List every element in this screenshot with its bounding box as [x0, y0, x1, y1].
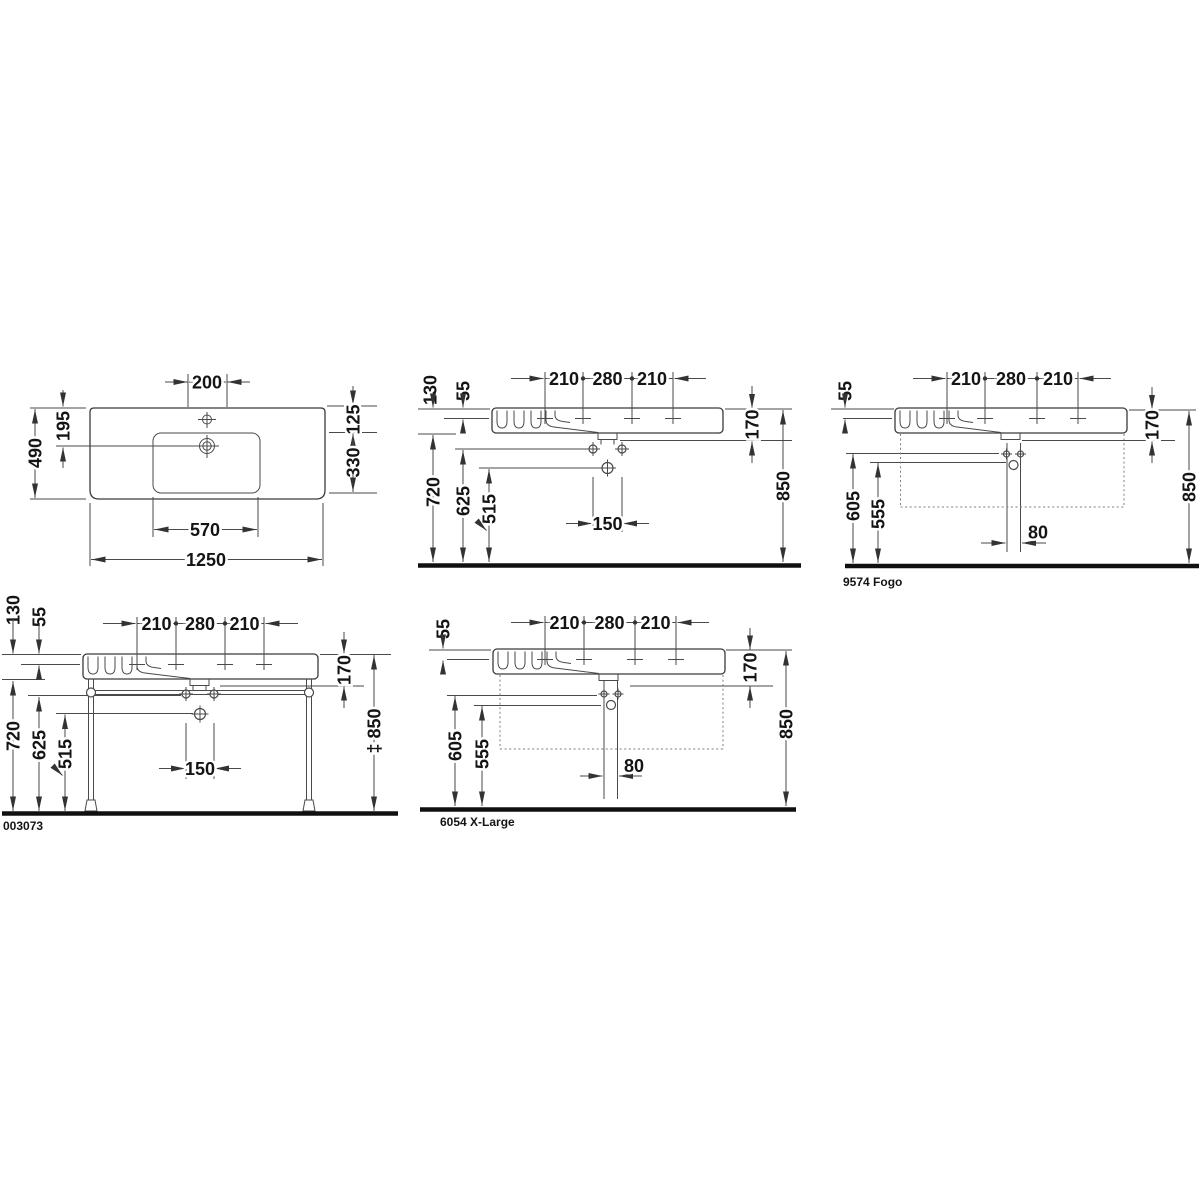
dim-fixing-height: 605 [843, 454, 863, 563]
dim-label-210-right: 210 [637, 369, 667, 389]
dim-label-130: 130 [420, 375, 440, 405]
drain-outlet-icon [607, 701, 616, 710]
dim-label-55: 55 [433, 619, 453, 639]
dim-basin-width: 570 [154, 520, 257, 540]
vanity-unit-outline [901, 434, 1125, 507]
dim-rim-height: 850 [776, 651, 796, 806]
fixing-holes [586, 440, 629, 477]
dim-label-720: 720 [423, 477, 443, 507]
drawing-metal-console: 210 280 210 130 720 55 [2, 595, 398, 833]
dim-label-210-left: 210 [141, 614, 171, 634]
top-dimension-chain: 210 280 210 [103, 614, 298, 659]
dim-drain-height: 555 [472, 706, 492, 806]
drawing-xlarge-vanity: 210 280 210 55 605 555 [420, 613, 796, 829]
top-dimension-chain: 210 280 210 [511, 369, 706, 413]
dim-label-80: 80 [1028, 522, 1048, 542]
dim-drain-height: 515 [479, 469, 499, 562]
dim-label-850: 850 [1179, 472, 1199, 502]
dim-label-170: 170 [334, 655, 354, 685]
dim-body-height: 170 [334, 632, 354, 708]
dim-label-170: 170 [740, 652, 760, 682]
dim-body-height: 170 [1142, 387, 1162, 463]
dim-label-200: 200 [192, 372, 222, 392]
dim-label-280: 280 [996, 369, 1026, 389]
dim-tap-drop: 55 [835, 381, 855, 433]
dim-label-605: 605 [445, 731, 465, 761]
dim-label-625: 625 [29, 730, 49, 760]
dim-label-850-adjustable: ‡ 850 [364, 708, 384, 753]
dim-label-625: 625 [453, 486, 473, 516]
dim-fixing-height: 605 [445, 696, 465, 806]
dim-label-195: 195 [53, 411, 73, 441]
top-dimension-chain: 210 280 210 [913, 369, 1111, 413]
dim-drain-height: 515 [55, 715, 75, 812]
dim-label-280: 280 [594, 613, 624, 633]
dim-pipe-spacing: 80 [580, 756, 644, 776]
dim-front-height: 130 [3, 595, 23, 654]
rail-mount [87, 688, 96, 697]
dim-label-515: 515 [479, 494, 499, 524]
dim-label-555: 555 [472, 739, 492, 769]
console-legs [85, 679, 315, 811]
dim-label-125: 125 [343, 404, 363, 434]
washbasin-body-section [492, 408, 723, 440]
dim-body-height: 170 [742, 386, 762, 463]
dim-rim-height: 850 [773, 410, 793, 562]
dim-label-210-left: 210 [951, 369, 981, 389]
washbasin-body-section [83, 654, 318, 686]
dim-tap-drop: 55 [433, 619, 453, 673]
dim-body-height: 170 [740, 628, 760, 708]
dim-label-720: 720 [3, 721, 23, 751]
fixing-holes [179, 686, 221, 723]
dim-rear-to-drain: 195 [53, 390, 73, 468]
dim-label-210-right: 210 [1043, 369, 1073, 389]
washbasin-body-section [493, 649, 725, 681]
drawing-plan-view: 200 490 195 125 330 [25, 372, 377, 570]
dim-basin-depth: 330 [343, 434, 363, 492]
dim-overall-width: 1250 [91, 550, 322, 570]
dim-fixing-spacing: 150 [159, 723, 241, 779]
dim-tap-platform-width: 200 [165, 372, 250, 392]
caption-xlarge: 6054 X-Large [440, 815, 515, 829]
washbasin-body-section [895, 408, 1127, 440]
dim-label-80: 80 [624, 756, 644, 776]
dim-label-1250: 1250 [186, 550, 226, 570]
dim-pipe-spacing: 80 [981, 522, 1048, 543]
dim-label-490: 490 [25, 438, 45, 468]
dim-fixing-height: 625 [453, 450, 473, 562]
dim-label-210-right: 210 [229, 614, 259, 634]
caption-fogo: 9574 Fogo [843, 575, 902, 589]
leg-foot [85, 800, 97, 811]
dim-label-150: 150 [185, 759, 215, 779]
drain-pipes [599, 681, 624, 799]
dim-label-280: 280 [185, 614, 215, 634]
dim-label-555: 555 [868, 499, 888, 529]
rail-mount [305, 688, 314, 697]
dim-overall-depth: 490 [25, 409, 45, 498]
drawing-fogo-console: 210 280 210 55 605 555 [831, 369, 1199, 589]
dim-rim-height: 850 [1179, 411, 1199, 563]
dim-label-605: 605 [843, 491, 863, 521]
drain-pipes [1001, 443, 1026, 552]
dim-label-515: 515 [55, 739, 75, 769]
leg-foot [303, 800, 315, 811]
dim-label-570: 570 [190, 520, 220, 540]
dim-label-170: 170 [742, 409, 762, 439]
dim-label-170: 170 [1142, 410, 1162, 440]
dim-fixing-height: 625 [29, 697, 49, 811]
dim-label-850: 850 [773, 471, 793, 501]
drain-outlet-icon [1009, 461, 1018, 470]
dim-tap-drop: 55 [453, 381, 473, 433]
dim-fixing-spacing: 150 [566, 477, 649, 534]
dim-label-280: 280 [592, 369, 622, 389]
technical-drawing-sheet: 200 490 195 125 330 [0, 0, 1200, 1200]
dim-rim-height: ‡ 850 [364, 655, 384, 811]
caption-console: 003073 [3, 819, 43, 833]
dim-label-210-left: 210 [549, 613, 579, 633]
dim-underside-height: 720 [3, 681, 23, 811]
dim-label-850: 850 [776, 709, 796, 739]
dim-label-210-left: 210 [549, 369, 579, 389]
technical-drawing-canvas: 200 490 195 125 330 [0, 0, 1200, 1200]
dim-label-150: 150 [592, 514, 622, 534]
dim-underside-height: 720 [423, 435, 443, 562]
top-dimension-chain: 210 280 210 [511, 613, 709, 654]
dim-label-210-right: 210 [640, 613, 670, 633]
drawing-wall-mounted: 210 280 210 130 720 55 [418, 369, 801, 566]
dim-front-height: 130 [420, 375, 440, 408]
dim-drain-height: 555 [868, 463, 888, 563]
dim-tap-drop: 55 [29, 607, 49, 679]
